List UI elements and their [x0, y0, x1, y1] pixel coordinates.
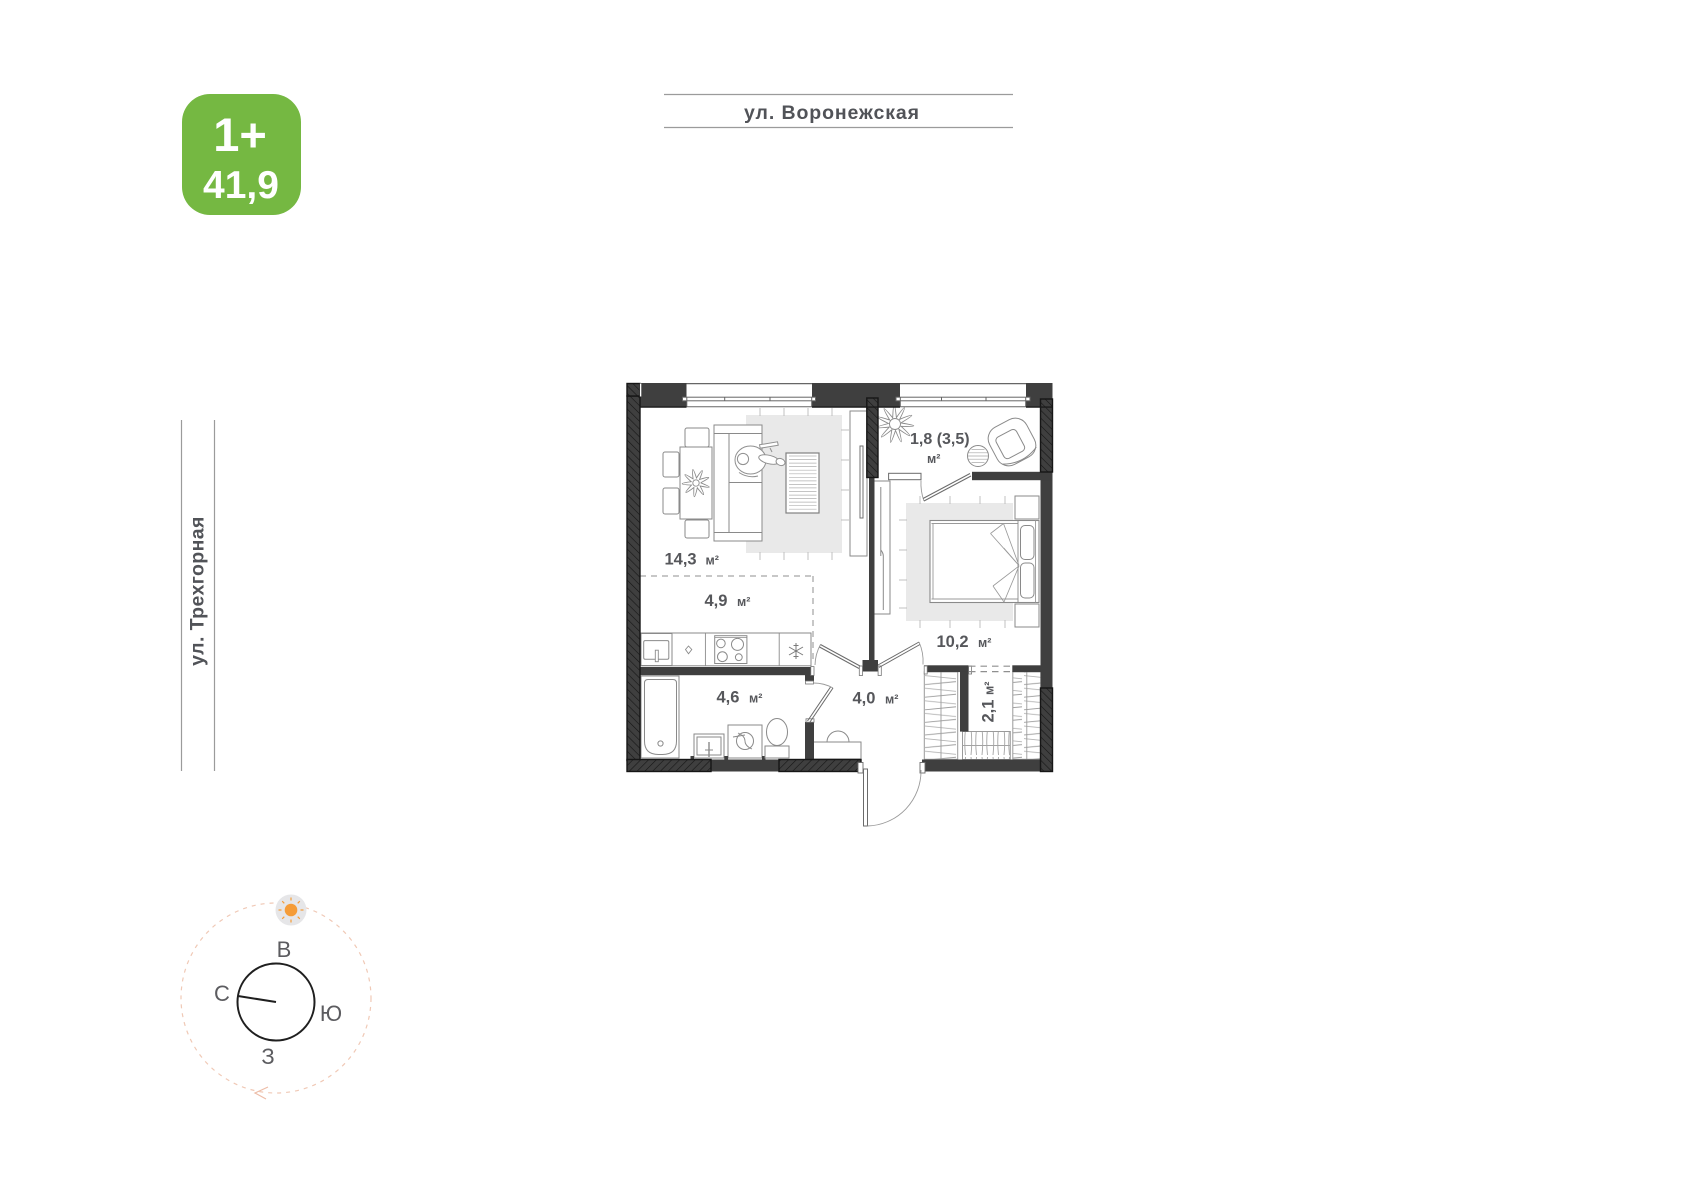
svg-text:1,8 (3,5): 1,8 (3,5) — [910, 431, 970, 448]
svg-text:Ю: Ю — [320, 1001, 342, 1026]
svg-text:2,1: 2,1 — [980, 700, 998, 723]
svg-text:41,9: 41,9 — [203, 164, 279, 207]
svg-text:В: В — [277, 937, 292, 962]
svg-text:4,6: 4,6 — [717, 689, 740, 707]
svg-text:10,2: 10,2 — [937, 633, 969, 651]
svg-text:4,9: 4,9 — [705, 592, 728, 610]
svg-text:м²: м² — [737, 595, 750, 609]
svg-text:м²: м² — [983, 682, 997, 695]
svg-text:м²: м² — [706, 554, 719, 568]
svg-text:З: З — [261, 1044, 274, 1069]
svg-text:м²: м² — [927, 452, 940, 466]
svg-text:м²: м² — [885, 693, 898, 707]
svg-text:м²: м² — [749, 692, 762, 706]
svg-text:С: С — [214, 981, 230, 1006]
svg-text:1+: 1+ — [213, 108, 267, 161]
svg-text:14,3: 14,3 — [665, 551, 697, 569]
svg-text:4,0: 4,0 — [853, 690, 876, 708]
svg-text:ул. Трехгорная: ул. Трехгорная — [187, 516, 209, 666]
svg-text:ул. Воронежская: ул. Воронежская — [744, 102, 920, 124]
svg-text:м²: м² — [978, 636, 991, 650]
